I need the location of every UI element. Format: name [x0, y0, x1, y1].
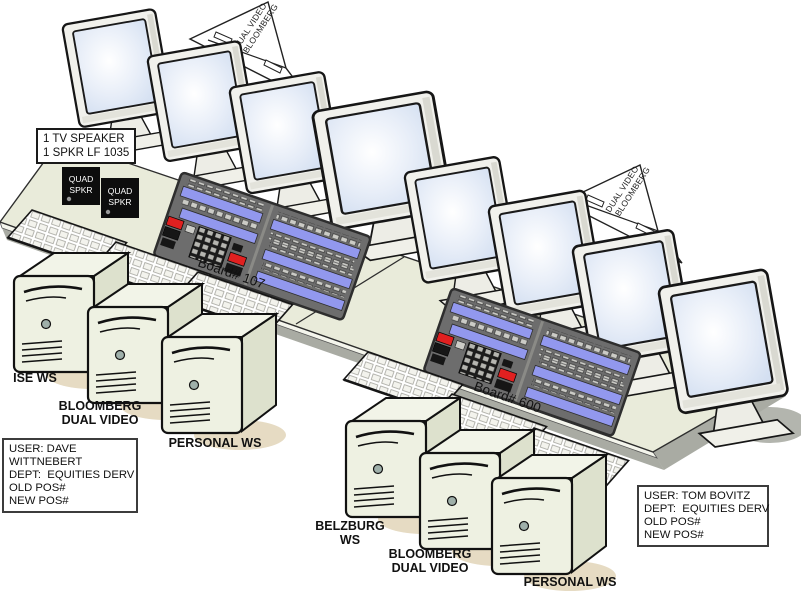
tv-speaker-note-line1: 1 TV SPEAKER [43, 133, 125, 145]
tv-speaker-note: 1 TV SPEAKER 1 SPKR LF 1035 [36, 128, 136, 164]
ws-label-line: DUAL VIDEO [365, 562, 495, 576]
ws-label-line: BELZBURG [300, 520, 400, 534]
quad-speaker-label-line1: QUAD [69, 174, 94, 184]
quad-speaker-label-line2: SPKR [69, 185, 92, 195]
user-line: OLD POS# [9, 482, 66, 494]
quad-speaker-label-line1: QUAD [108, 186, 133, 196]
speaker-dot-icon [67, 197, 71, 201]
ws-label-line: BLOOMBERG [365, 548, 495, 562]
user-line: DEPT: EQUITIES DERV [644, 503, 769, 515]
ws-label-line: DUAL VIDEO [35, 414, 165, 428]
label-personal-ws-1: PERSONAL WS [150, 437, 280, 451]
tv-speaker-note-line2: 1 SPKR LF 1035 [43, 147, 129, 159]
tower-personal-ws-2 [492, 455, 616, 591]
user-line: NEW POS# [644, 529, 704, 541]
label-ise-ws: ISE WS [0, 372, 70, 386]
label-bloomberg-dual-video-1: BLOOMBERG DUAL VIDEO [35, 400, 165, 427]
tower-personal-ws-1 [162, 314, 286, 450]
ws-label-line: PERSONAL WS [505, 576, 635, 590]
quad-speaker-1: QUAD SPKR [62, 167, 100, 205]
user-line: NEW POS# [9, 495, 69, 507]
ws-label-line: WS [300, 534, 400, 548]
user-line: OLD POS# [644, 516, 701, 528]
user-box-dave: USER: DAVE WITTNEBERT DEPT: EQUITIES DER… [2, 438, 138, 513]
ws-label-line: BLOOMBERG [35, 400, 165, 414]
user-line: USER: TOM BOVITZ [644, 490, 750, 502]
label-personal-ws-2: PERSONAL WS [505, 576, 635, 590]
quad-speaker-2: QUAD SPKR [101, 178, 139, 218]
ws-label-line: ISE WS [0, 372, 70, 386]
quad-speaker-label-line2: SPKR [108, 197, 131, 207]
ws-label-line: PERSONAL WS [150, 437, 280, 451]
user-box-tom: USER: TOM BOVITZ DEPT: EQUITIES DERV OLD… [637, 485, 769, 547]
label-bloomberg-dual-video-2: BLOOMBERG DUAL VIDEO [365, 548, 495, 575]
trading-desk-diagram: DUAL VIDEO BLOOMBERG DUAL VIDEO BLOOMBER… [0, 0, 801, 595]
user-line: DEPT: EQUITIES DERV [9, 469, 134, 481]
user-line: WITTNEBERT [9, 456, 82, 468]
speaker-dot-icon [106, 210, 110, 214]
user-line: USER: DAVE [9, 443, 77, 455]
label-belzburg-ws: BELZBURG WS [300, 520, 400, 547]
